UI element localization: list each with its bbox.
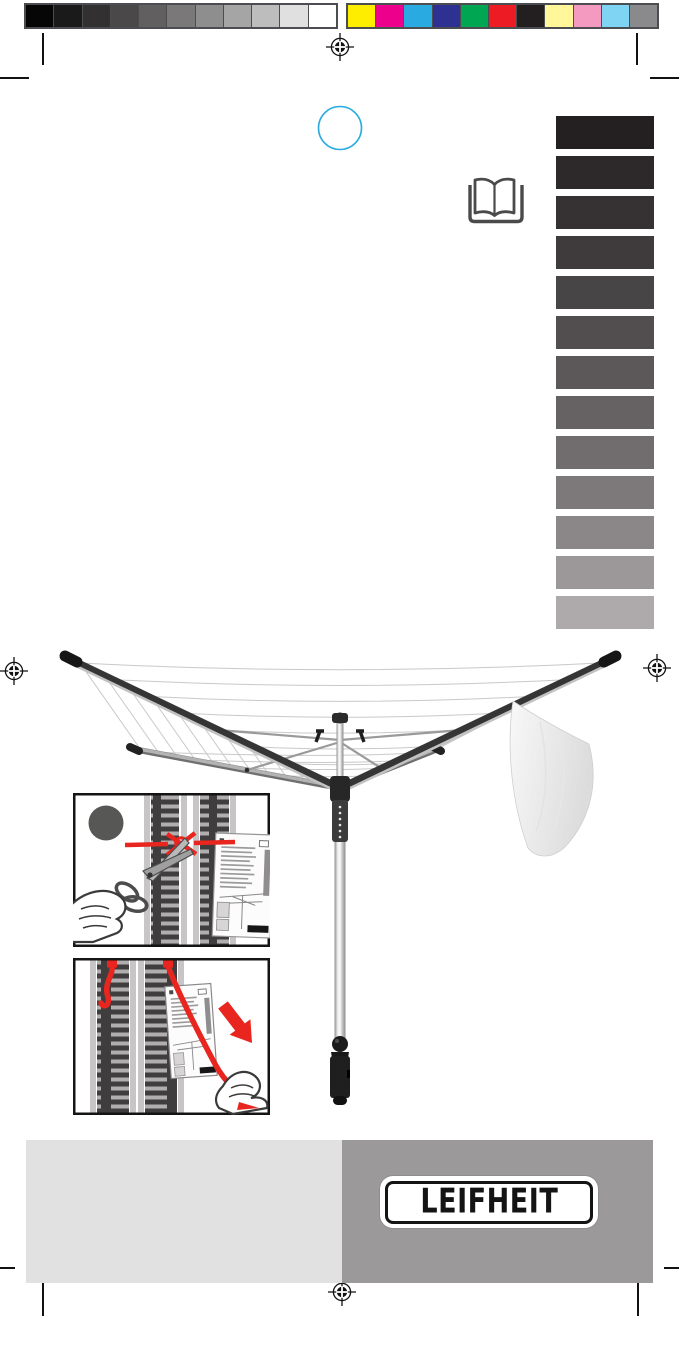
grayscale-swatch-5 xyxy=(167,5,194,27)
grayscale-swatch-8 xyxy=(252,5,279,27)
grayscale-swatch-1 xyxy=(54,5,81,27)
hanging-cloth xyxy=(510,701,593,856)
crop-mark-bottom-right-h xyxy=(664,1267,679,1269)
color-swatch-7 xyxy=(545,5,572,27)
language-tab-0 xyxy=(556,116,654,149)
step-circle-icon xyxy=(89,806,124,841)
color-swatch-2 xyxy=(404,5,431,27)
language-tab-1 xyxy=(556,156,654,189)
language-tab-2 xyxy=(556,196,654,229)
ground-sleeve xyxy=(330,1036,350,1105)
crop-mark-top-left-h xyxy=(0,77,29,79)
leifheit-logo: LEIFHEIT xyxy=(380,1176,598,1228)
grayscale-swatch-6 xyxy=(196,5,223,27)
color-swatch-1 xyxy=(376,5,403,27)
language-tab-5 xyxy=(556,316,654,349)
language-tab-stack xyxy=(556,116,654,629)
arm-hub xyxy=(330,776,350,802)
footer-left-panel xyxy=(26,1140,342,1283)
language-tab-3 xyxy=(556,236,654,269)
color-calibration-bar xyxy=(346,3,659,29)
grayscale-swatch-9 xyxy=(280,5,307,27)
crop-mark-top-right-h xyxy=(650,77,679,79)
mini-manual-booklet xyxy=(165,984,217,1079)
crop-mark-bottom-left-v xyxy=(42,1283,44,1316)
mini-manual-booklet xyxy=(212,833,270,938)
manual-cover-page: LEIFHEIT xyxy=(0,0,679,1345)
color-swatch-4 xyxy=(461,5,488,27)
crop-mark-top-right-v xyxy=(636,33,638,65)
crop-mark-bottom-left-h xyxy=(0,1267,15,1269)
grayscale-swatch-7 xyxy=(224,5,251,27)
grayscale-swatch-4 xyxy=(139,5,166,27)
language-tab-11 xyxy=(556,556,654,589)
color-swatch-9 xyxy=(602,5,629,27)
color-swatch-3 xyxy=(433,5,460,27)
crop-mark-bottom-right-v xyxy=(637,1283,639,1316)
color-swatch-5 xyxy=(489,5,516,27)
grayscale-swatch-10 xyxy=(309,5,336,27)
color-swatch-6 xyxy=(517,5,544,27)
language-tab-8 xyxy=(556,436,654,469)
language-tab-6 xyxy=(556,356,654,389)
language-tab-4 xyxy=(556,276,654,309)
grayscale-swatch-0 xyxy=(26,5,53,27)
read-manual-book-icon xyxy=(461,171,531,227)
language-tab-7 xyxy=(556,396,654,429)
grayscale-swatch-3 xyxy=(111,5,138,27)
language-tab-12 xyxy=(556,596,654,629)
color-swatch-10 xyxy=(630,5,657,27)
color-swatch-8 xyxy=(574,5,601,27)
registration-mark-top-icon xyxy=(325,32,355,62)
crop-mark-top-left-v xyxy=(42,33,44,65)
language-tab-10 xyxy=(556,516,654,549)
grayscale-calibration-bar xyxy=(24,3,338,29)
grayscale-swatch-2 xyxy=(83,5,110,27)
language-tab-9 xyxy=(556,476,654,509)
inset-cut-cord-illustration xyxy=(73,793,270,947)
cyan-circle-icon xyxy=(317,105,363,151)
inset-pull-strap-illustration xyxy=(73,958,270,1115)
leifheit-logo-frame: LEIFHEIT xyxy=(385,1181,593,1224)
color-swatch-0 xyxy=(348,5,375,27)
leifheit-logo-text: LEIFHEIT xyxy=(420,1185,558,1219)
